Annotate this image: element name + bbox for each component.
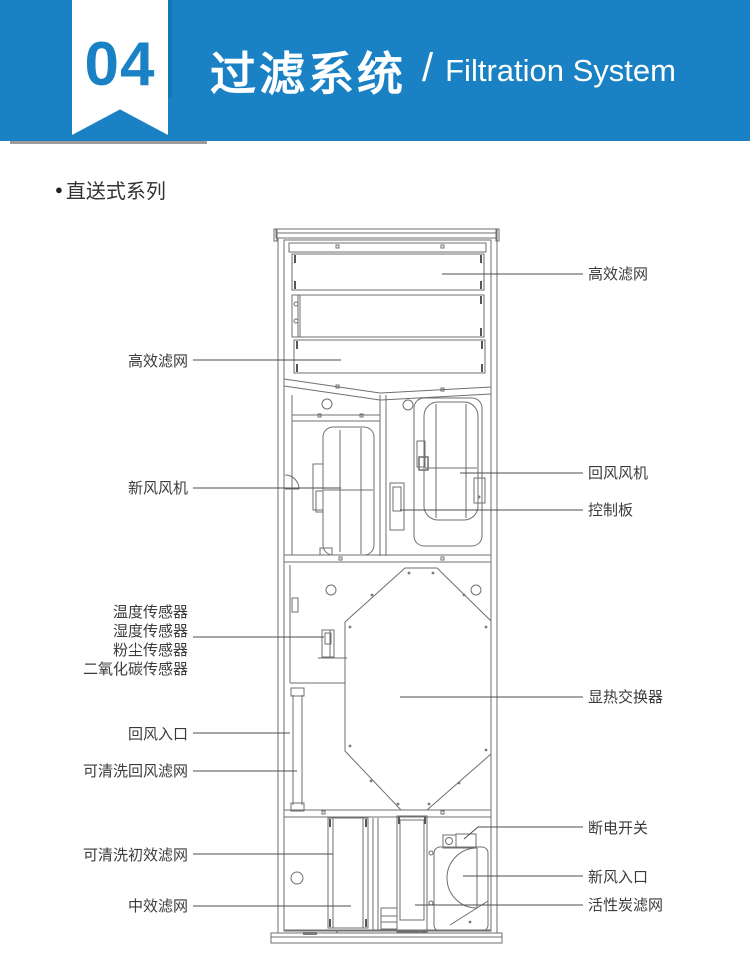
control-board-drawing [390,483,404,530]
label-hepa-filter-left: 高效滤网 [128,353,188,370]
primary-medium-filter-drawing [328,818,368,928]
return-air-fan-drawing [414,398,485,546]
label-dust-sensor: 粉尘传感器 [113,642,188,659]
label-return-air-inlet: 回风入口 [128,726,188,743]
hepa-filter-band-1 [292,254,484,290]
label-control-board: 控制板 [588,501,633,519]
label-fresh-air-inlet: 新风入口 [588,869,648,886]
label-hepa-filter-right: 高效滤网 [588,266,648,283]
label-carbon-filter: 活性炭滤网 [588,897,663,914]
label-temp-sensor: 温度传感器 [113,604,188,621]
diagram-labels: 高效滤网 新风风机 温度传感器 湿度传感器 粉尘传感器 二氧化碳传感器 回风入口… [83,266,663,915]
label-co2-sensor: 二氧化碳传感器 [83,661,188,678]
label-humidity-sensor: 湿度传感器 [113,623,188,640]
heat-exchanger-drawing [290,565,491,810]
label-medium-filter: 中效滤网 [128,898,188,915]
bottom-motor-box-drawing [381,908,397,929]
sensor-box-drawing [318,630,347,658]
label-return-air-fan: 回风风机 [588,465,648,482]
filter-corner-clips [295,255,482,927]
label-power-switch: 断电开关 [588,820,648,837]
catalog-page: 04 过滤系统 / Filtration System ● 直送式系列 [0,0,750,974]
bolt-dots [303,496,487,936]
label-heat-exchanger: 显热交换器 [588,688,663,706]
label-fresh-air-fan: 新风风机 [128,480,188,497]
leader-lines [193,274,583,906]
carbon-filter-drawing [397,816,427,932]
hepa-filter-band-3 [294,340,485,373]
unit-cutaway-diagram: 高效滤网 新风风机 温度传感器 湿度传感器 粉尘传感器 二氧化碳传感器 回风入口… [0,0,750,974]
return-filter-strip-drawing [291,688,304,811]
fresh-air-inlet-drawing [429,847,488,931]
power-switch-drawing [443,834,476,848]
leader-power-switch [464,827,583,839]
fresh-air-fan-drawing [285,427,374,555]
label-washable-primary-filter: 可清洗初效滤网 [83,847,188,864]
hepa-filter-band-2 [292,295,484,337]
label-washable-return-filter: 可清洗回风滤网 [83,763,188,780]
